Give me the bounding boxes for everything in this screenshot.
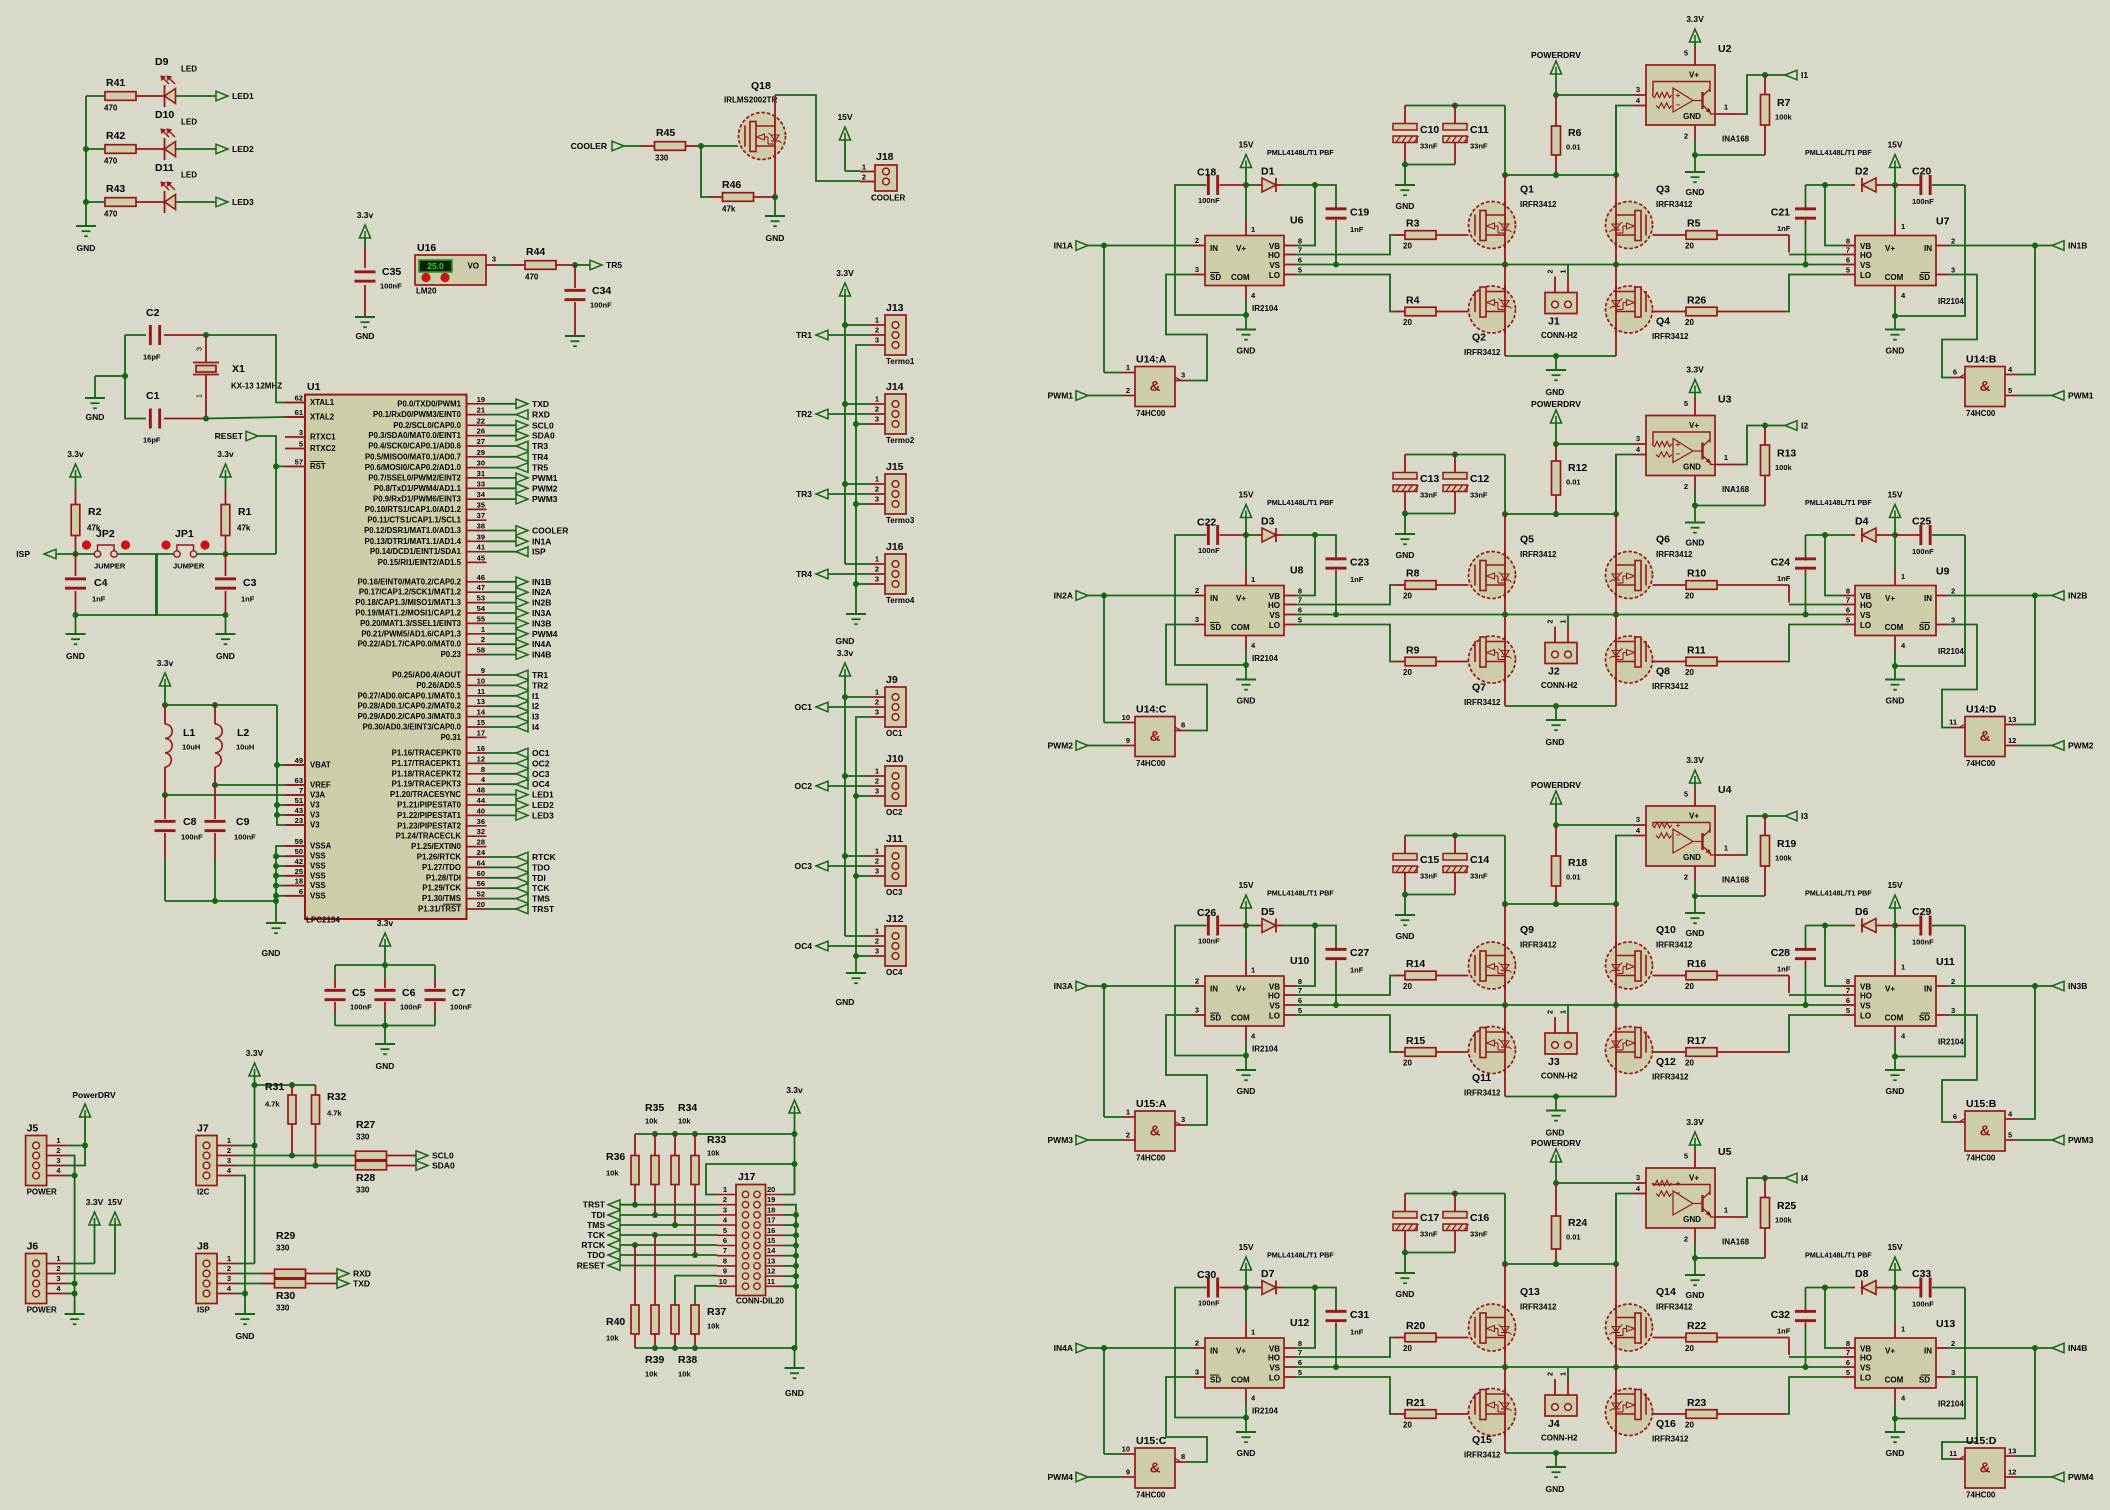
svg-text:IN2A: IN2A — [1054, 591, 1073, 601]
svg-text:P1.29/TCK: P1.29/TCK — [422, 884, 461, 893]
svg-text:25.0: 25.0 — [427, 261, 444, 271]
svg-text:R22: R22 — [1687, 1320, 1706, 1332]
svg-text:U11: U11 — [1936, 956, 1955, 968]
svg-text:U5: U5 — [1718, 1146, 1732, 1158]
svg-text:470: 470 — [104, 104, 118, 113]
svg-text:GND: GND — [1237, 346, 1256, 356]
svg-text:7: 7 — [1298, 986, 1302, 995]
svg-text:ISP: ISP — [16, 549, 30, 559]
svg-text:C1: C1 — [146, 390, 160, 402]
svg-text:SD: SD — [1919, 1376, 1930, 1385]
svg-text:IN: IN — [1924, 985, 1932, 994]
svg-text:−: − — [1676, 450, 1681, 459]
svg-text:PMLL4148L/T1 PBF: PMLL4148L/T1 PBF — [1267, 498, 1334, 507]
svg-text:1: 1 — [227, 1254, 231, 1263]
svg-text:IN: IN — [1924, 594, 1932, 603]
svg-text:R26: R26 — [1687, 295, 1706, 307]
svg-text:4.7k: 4.7k — [327, 1109, 342, 1118]
svg-text:1: 1 — [1561, 1372, 1568, 1376]
svg-text:3: 3 — [875, 495, 879, 504]
svg-text:P0.13/DTR1/MAT1.1/AD1.4: P0.13/DTR1/MAT1.1/AD1.4 — [365, 537, 462, 546]
svg-text:4.7k: 4.7k — [265, 1100, 280, 1109]
svg-text:P0.9/RxD1/PWM6/EINT3: P0.9/RxD1/PWM6/EINT3 — [373, 495, 462, 504]
svg-text:R27: R27 — [356, 1119, 375, 1131]
svg-text:5: 5 — [2008, 1131, 2012, 1140]
svg-text:IN4A: IN4A — [532, 639, 551, 649]
svg-text:100nF: 100nF — [181, 833, 203, 842]
svg-text:R17: R17 — [1687, 1035, 1706, 1047]
svg-text:41: 41 — [477, 543, 485, 552]
svg-text:C14: C14 — [1470, 854, 1489, 866]
svg-text:HO: HO — [1268, 1354, 1280, 1363]
svg-text:20: 20 — [1685, 592, 1694, 601]
svg-text:Q16: Q16 — [1656, 1418, 1676, 1430]
svg-text:J14: J14 — [886, 381, 904, 393]
svg-text:GND: GND — [1396, 931, 1415, 941]
svg-text:1: 1 — [1561, 269, 1568, 273]
svg-text:2: 2 — [875, 485, 879, 494]
svg-text:2: 2 — [1684, 873, 1688, 882]
svg-text:14: 14 — [477, 708, 486, 717]
svg-text:1: 1 — [875, 555, 879, 564]
svg-text:100nF: 100nF — [400, 1003, 422, 1012]
svg-text:IRFR3412: IRFR3412 — [1464, 698, 1501, 707]
svg-text:P0.19/MAT1.2/MOSI1/CAP1.2: P0.19/MAT1.2/MOSI1/CAP1.2 — [355, 609, 461, 618]
svg-text:C10: C10 — [1420, 124, 1439, 136]
svg-text:TMS: TMS — [587, 1220, 605, 1230]
svg-text:10: 10 — [1122, 1445, 1130, 1454]
svg-text:26: 26 — [477, 427, 485, 436]
svg-text:1nF: 1nF — [1777, 224, 1791, 233]
svg-text:OC3: OC3 — [886, 888, 903, 897]
svg-text:IRFR3412: IRFR3412 — [1656, 941, 1693, 950]
svg-text:JP2: JP2 — [96, 528, 115, 540]
svg-text:GND: GND — [836, 997, 855, 1007]
svg-text:P0.6/MOSI0/CAP0.2/AD1.0: P0.6/MOSI0/CAP0.2/AD1.0 — [365, 463, 462, 472]
svg-text:GND: GND — [1886, 1448, 1905, 1458]
svg-text:2: 2 — [875, 698, 879, 707]
svg-text:2: 2 — [1126, 386, 1130, 395]
svg-text:TCK: TCK — [588, 1230, 606, 1240]
svg-text:I4: I4 — [1801, 1173, 1808, 1183]
svg-text:56: 56 — [477, 879, 485, 888]
svg-text:2: 2 — [1195, 977, 1199, 986]
svg-text:74HC00: 74HC00 — [1136, 759, 1166, 768]
svg-text:IRFR3412: IRFR3412 — [1652, 1435, 1689, 1444]
svg-text:U3: U3 — [1718, 394, 1732, 406]
svg-text:IN2B: IN2B — [532, 598, 551, 608]
svg-text:SD: SD — [1919, 623, 1930, 632]
svg-text:P0.0/TXD0/PWM1: P0.0/TXD0/PWM1 — [397, 399, 461, 408]
svg-text:50: 50 — [295, 847, 303, 856]
svg-text:GND: GND — [1396, 201, 1415, 211]
svg-text:P1.30/TMS: P1.30/TMS — [422, 894, 461, 903]
svg-text:TRST: TRST — [583, 1200, 606, 1210]
svg-text:2: 2 — [875, 565, 879, 574]
svg-text:R31: R31 — [265, 1081, 284, 1093]
svg-text:IRLMS2002TR: IRLMS2002TR — [724, 96, 778, 105]
svg-text:3: 3 — [1636, 434, 1640, 443]
svg-text:J11: J11 — [886, 833, 903, 845]
svg-text:2: 2 — [227, 1264, 231, 1273]
svg-text:R32: R32 — [327, 1091, 346, 1103]
svg-text:VSS: VSS — [310, 852, 326, 861]
svg-text:10k: 10k — [678, 1117, 691, 1126]
svg-text:IR2104: IR2104 — [1252, 304, 1278, 313]
svg-text:10uH: 10uH — [182, 743, 200, 752]
svg-text:6: 6 — [1846, 256, 1850, 265]
svg-text:IN1A: IN1A — [1054, 241, 1073, 251]
svg-text:3: 3 — [1951, 266, 1955, 275]
svg-text:HO: HO — [1860, 251, 1872, 260]
svg-text:J8: J8 — [197, 1241, 209, 1253]
svg-text:R18: R18 — [1568, 857, 1587, 869]
svg-text:P0.8/TxD1/PWM4/AD1.1: P0.8/TxD1/PWM4/AD1.1 — [374, 484, 462, 493]
svg-text:U9: U9 — [1936, 566, 1950, 578]
svg-text:TR4: TR4 — [796, 569, 812, 579]
svg-text:5: 5 — [1298, 616, 1302, 625]
svg-text:LED2: LED2 — [532, 800, 554, 810]
svg-text:C15: C15 — [1420, 854, 1439, 866]
svg-text:SCL0: SCL0 — [432, 1151, 454, 1161]
svg-text:PMLL4148L/T1 PBF: PMLL4148L/T1 PBF — [1805, 148, 1872, 157]
svg-text:C29: C29 — [1912, 906, 1931, 918]
svg-text:C33: C33 — [1912, 1268, 1931, 1280]
svg-text:IN1B: IN1B — [532, 577, 551, 587]
svg-text:1: 1 — [56, 1254, 60, 1263]
svg-text:13: 13 — [2008, 715, 2016, 724]
svg-text:20: 20 — [1403, 242, 1412, 251]
svg-text:VS: VS — [1860, 1002, 1871, 1011]
svg-text:10: 10 — [1122, 713, 1130, 722]
svg-text:3: 3 — [195, 347, 204, 351]
svg-text:100nF: 100nF — [350, 1003, 372, 1012]
svg-text:TR1: TR1 — [796, 330, 812, 340]
svg-text:12: 12 — [2008, 1468, 2016, 1477]
svg-text:2: 2 — [1548, 1372, 1555, 1376]
svg-text:6: 6 — [1298, 1358, 1302, 1367]
svg-text:3: 3 — [1636, 815, 1640, 824]
svg-text:−: − — [1676, 1189, 1681, 1198]
svg-text:20: 20 — [1403, 1421, 1412, 1430]
svg-text:100nF: 100nF — [1912, 197, 1934, 206]
svg-text:P1.28/TDI: P1.28/TDI — [426, 873, 461, 882]
svg-text:U12: U12 — [1290, 1317, 1309, 1329]
svg-text:3.3v: 3.3v — [67, 449, 84, 459]
svg-text:POWERDRV: POWERDRV — [1531, 780, 1581, 790]
svg-text:OC3: OC3 — [795, 861, 813, 871]
svg-text:LED: LED — [181, 118, 197, 127]
svg-text:LED1: LED1 — [532, 790, 554, 800]
svg-text:R35: R35 — [645, 1102, 664, 1114]
svg-text:OC4: OC4 — [886, 968, 903, 977]
svg-text:CONN-H2: CONN-H2 — [1541, 1072, 1578, 1081]
svg-text:GND: GND — [1886, 346, 1905, 356]
svg-text:VBAT: VBAT — [310, 761, 331, 770]
svg-text:LED1: LED1 — [232, 91, 254, 101]
svg-text:R41: R41 — [106, 77, 125, 89]
svg-text:P1.19/TRACEPKT3: P1.19/TRACEPKT3 — [392, 780, 462, 789]
svg-text:33nF: 33nF — [1420, 1230, 1438, 1239]
svg-text:16pF: 16pF — [143, 436, 161, 445]
svg-text:10k: 10k — [678, 1370, 691, 1379]
svg-text:17: 17 — [477, 728, 485, 737]
svg-text:RXD: RXD — [353, 1269, 371, 1279]
svg-text:2: 2 — [875, 326, 879, 335]
svg-text:&: & — [1980, 378, 1991, 395]
svg-text:P0.17/CAP1.2/SCK1/MAT1.2: P0.17/CAP1.2/SCK1/MAT1.2 — [359, 588, 462, 597]
svg-text:VS: VS — [1860, 611, 1871, 620]
svg-text:V+: V+ — [1236, 244, 1246, 253]
svg-text:PWM1: PWM1 — [2068, 391, 2094, 401]
svg-text:IRFR3412: IRFR3412 — [1520, 550, 1557, 559]
svg-text:20: 20 — [1403, 592, 1412, 601]
svg-text:R25: R25 — [1777, 1200, 1796, 1212]
svg-text:LO: LO — [1860, 621, 1871, 630]
svg-text:47k: 47k — [722, 205, 736, 214]
svg-text:POWERDRV: POWERDRV — [1531, 1138, 1581, 1148]
svg-text:R13: R13 — [1777, 448, 1796, 460]
svg-text:5: 5 — [1298, 1368, 1302, 1377]
svg-text:VS: VS — [1860, 1364, 1871, 1373]
svg-text:GND: GND — [766, 233, 785, 243]
svg-text:20: 20 — [477, 900, 485, 909]
svg-text:I3: I3 — [532, 712, 539, 722]
svg-text:IN3A: IN3A — [1054, 981, 1073, 991]
svg-text:J2: J2 — [1548, 666, 1560, 678]
svg-text:5: 5 — [2008, 386, 2012, 395]
svg-text:R45: R45 — [656, 127, 675, 139]
svg-text:63: 63 — [295, 776, 303, 785]
svg-text:P0.10/RTS1/CAP1.0/AD1.2: P0.10/RTS1/CAP1.0/AD1.2 — [365, 505, 462, 514]
svg-text:15: 15 — [767, 1236, 775, 1245]
svg-text:OC2: OC2 — [795, 781, 813, 791]
svg-text:I4: I4 — [532, 722, 539, 732]
svg-text:Q15: Q15 — [1472, 1434, 1492, 1446]
svg-text:Q5: Q5 — [1520, 534, 1534, 546]
svg-text:3: 3 — [56, 1156, 60, 1165]
svg-text:P0.15/RI1/EINT2/AD1.5: P0.15/RI1/EINT2/AD1.5 — [378, 558, 462, 567]
svg-text:SDA0: SDA0 — [532, 431, 555, 441]
svg-text:Q8: Q8 — [1656, 666, 1670, 678]
svg-text:J9: J9 — [886, 674, 898, 686]
svg-text:20: 20 — [1685, 1059, 1694, 1068]
svg-text:I2: I2 — [1801, 421, 1808, 431]
svg-text:13: 13 — [2008, 1447, 2016, 1456]
svg-text:3.3V: 3.3V — [836, 268, 854, 278]
svg-text:OC4: OC4 — [795, 941, 813, 951]
svg-text:100nF: 100nF — [1198, 937, 1220, 946]
svg-text:64: 64 — [477, 858, 486, 867]
svg-text:POWERDRV: POWERDRV — [1531, 399, 1581, 409]
svg-text:IR2104: IR2104 — [1252, 1407, 1278, 1416]
svg-text:Termo1: Termo1 — [886, 357, 915, 366]
svg-text:2: 2 — [723, 1195, 727, 1204]
svg-text:C17: C17 — [1420, 1212, 1439, 1224]
svg-text:TR1: TR1 — [532, 670, 548, 680]
svg-text:8: 8 — [1846, 237, 1850, 246]
svg-text:IN: IN — [1924, 244, 1932, 253]
svg-text:R39: R39 — [645, 1354, 664, 1366]
svg-text:XTAL2: XTAL2 — [310, 413, 335, 422]
svg-text:C34: C34 — [592, 285, 611, 297]
svg-text:Q11: Q11 — [1472, 1072, 1491, 1084]
svg-text:47k: 47k — [237, 524, 251, 533]
svg-text:1: 1 — [1724, 844, 1728, 853]
svg-text:D6: D6 — [1855, 906, 1869, 918]
svg-text:C18: C18 — [1197, 167, 1216, 179]
svg-text:2: 2 — [875, 857, 879, 866]
svg-text:VB: VB — [1269, 242, 1280, 251]
svg-text:TXD: TXD — [532, 399, 549, 409]
svg-text:R20: R20 — [1406, 1320, 1425, 1332]
svg-text:IR2104: IR2104 — [1252, 1045, 1278, 1054]
svg-text:V+: V+ — [1689, 1174, 1699, 1183]
svg-text:100nF: 100nF — [1912, 547, 1934, 556]
svg-text:20: 20 — [1685, 1344, 1694, 1353]
svg-text:VS: VS — [1269, 1364, 1280, 1373]
svg-text:U1: U1 — [307, 381, 321, 393]
svg-text:15V: 15V — [837, 112, 852, 122]
svg-text:J12: J12 — [886, 913, 904, 925]
svg-text:U14:A: U14:A — [1136, 354, 1167, 366]
svg-text:VSS: VSS — [310, 862, 326, 871]
svg-text:IRFR3412: IRFR3412 — [1656, 200, 1693, 209]
svg-text:100nF: 100nF — [1912, 1300, 1934, 1309]
svg-text:1nF: 1nF — [1350, 966, 1364, 975]
svg-text:C11: C11 — [1470, 124, 1489, 136]
svg-text:RESET: RESET — [577, 1261, 606, 1271]
svg-text:8: 8 — [1181, 721, 1185, 730]
svg-text:C21: C21 — [1771, 207, 1790, 219]
svg-text:39: 39 — [477, 532, 485, 541]
svg-text:−: − — [1676, 831, 1681, 840]
svg-text:U8: U8 — [1290, 565, 1304, 577]
svg-text:IN1B: IN1B — [2068, 241, 2087, 251]
svg-text:3: 3 — [875, 415, 879, 424]
svg-text:VB: VB — [1860, 983, 1871, 992]
svg-text:3.3V: 3.3V — [1686, 14, 1704, 24]
svg-text:15V: 15V — [1238, 140, 1253, 150]
svg-text:Q14: Q14 — [1656, 1286, 1676, 1298]
svg-text:GND: GND — [1237, 1448, 1256, 1458]
svg-text:VO: VO — [467, 262, 479, 271]
svg-text:330: 330 — [276, 1304, 290, 1313]
svg-text:1: 1 — [1251, 225, 1255, 234]
svg-text:38: 38 — [477, 522, 485, 531]
svg-text:JUMPER: JUMPER — [173, 562, 205, 571]
svg-text:IN4B: IN4B — [2068, 1343, 2087, 1353]
svg-text:IRFR3412: IRFR3412 — [1652, 1073, 1689, 1082]
svg-text:PMLL4148L/T1 PBF: PMLL4148L/T1 PBF — [1805, 498, 1872, 507]
svg-text:LO: LO — [1860, 1012, 1871, 1021]
svg-text:0.01: 0.01 — [1566, 873, 1581, 882]
svg-text:D5: D5 — [1261, 906, 1275, 918]
svg-text:3: 3 — [1195, 615, 1199, 624]
svg-text:3: 3 — [723, 1205, 727, 1214]
svg-text:9: 9 — [1126, 736, 1130, 745]
svg-text:TDI: TDI — [532, 873, 546, 883]
svg-text:L1: L1 — [183, 727, 195, 739]
svg-text:Q3: Q3 — [1656, 184, 1670, 196]
svg-text:J16: J16 — [886, 541, 904, 553]
svg-text:3: 3 — [875, 575, 879, 584]
svg-text:U15:A: U15:A — [1136, 1098, 1167, 1110]
svg-text:2: 2 — [1951, 977, 1955, 986]
svg-text:2: 2 — [1684, 132, 1688, 141]
svg-text:2: 2 — [481, 635, 485, 644]
svg-text:60: 60 — [477, 869, 485, 878]
svg-text:C8: C8 — [183, 816, 197, 828]
svg-text:IRFR3412: IRFR3412 — [1520, 200, 1557, 209]
svg-text:59: 59 — [295, 837, 303, 846]
svg-text:2: 2 — [1126, 1131, 1130, 1140]
svg-text:P0.7/SSEL0/PWM2/EINT2: P0.7/SSEL0/PWM2/EINT2 — [368, 473, 461, 482]
svg-text:VB: VB — [1860, 1345, 1871, 1354]
svg-text:P0.30/AD0.3/EINT3/CAP0.0: P0.30/AD0.3/EINT3/CAP0.0 — [363, 723, 462, 732]
svg-text:P1.22/PIPESTAT1: P1.22/PIPESTAT1 — [397, 811, 462, 820]
svg-text:SDA0: SDA0 — [432, 1161, 455, 1171]
svg-text:GND: GND — [1237, 696, 1256, 706]
svg-text:Q10: Q10 — [1656, 924, 1676, 936]
svg-text:10k: 10k — [645, 1117, 658, 1126]
svg-text:D10: D10 — [155, 109, 174, 121]
svg-text:COOLER: COOLER — [571, 141, 607, 151]
svg-text:3: 3 — [492, 255, 496, 264]
svg-text:COOLER: COOLER — [871, 194, 905, 203]
svg-text:3.3v: 3.3v — [217, 449, 234, 459]
svg-text:&: & — [1150, 728, 1161, 745]
svg-text:1: 1 — [875, 767, 879, 776]
svg-text:L2: L2 — [237, 727, 249, 739]
svg-text:GND: GND — [1886, 1086, 1905, 1096]
svg-text:OC1: OC1 — [532, 748, 550, 758]
svg-text:Termo2: Termo2 — [886, 436, 915, 445]
svg-text:1: 1 — [1724, 453, 1728, 462]
svg-text:2: 2 — [1684, 1235, 1688, 1244]
svg-text:COM: COM — [1231, 623, 1250, 632]
svg-text:COM: COM — [1231, 273, 1250, 282]
svg-text:OC3: OC3 — [532, 769, 550, 779]
svg-text:5: 5 — [1846, 1006, 1850, 1015]
svg-text:8: 8 — [1846, 977, 1850, 986]
svg-text:GND: GND — [1683, 112, 1701, 121]
svg-text:1: 1 — [1901, 963, 1905, 972]
svg-text:LPC2134: LPC2134 — [306, 916, 340, 925]
svg-text:10: 10 — [719, 1277, 727, 1286]
svg-text:1: 1 — [1901, 572, 1905, 581]
svg-text:GND: GND — [1686, 187, 1705, 197]
svg-text:P0.29/AD0.2/CAP0.3/MAT0.3: P0.29/AD0.2/CAP0.3/MAT0.3 — [358, 712, 462, 721]
svg-text:GND: GND — [1683, 853, 1701, 862]
svg-text:3: 3 — [1195, 265, 1199, 274]
svg-text:V+: V+ — [1885, 1347, 1895, 1356]
svg-text:LO: LO — [1269, 1012, 1280, 1021]
svg-text:1: 1 — [1251, 1328, 1255, 1337]
svg-text:1: 1 — [1561, 619, 1568, 623]
svg-text:P0.14/DCD1/EINT1/SDA1: P0.14/DCD1/EINT1/SDA1 — [370, 547, 462, 556]
svg-text:8: 8 — [1298, 237, 1302, 246]
svg-text:XTAL1: XTAL1 — [310, 398, 335, 407]
svg-text:0.01: 0.01 — [1566, 478, 1581, 487]
svg-text:KX-13 12MHZ: KX-13 12MHZ — [231, 382, 282, 391]
svg-text:100nF: 100nF — [234, 833, 256, 842]
svg-text:1: 1 — [1724, 1206, 1728, 1215]
svg-text:10uH: 10uH — [236, 743, 254, 752]
svg-text:C4: C4 — [94, 577, 108, 589]
svg-text:32: 32 — [477, 827, 485, 836]
svg-text:470: 470 — [525, 273, 539, 282]
